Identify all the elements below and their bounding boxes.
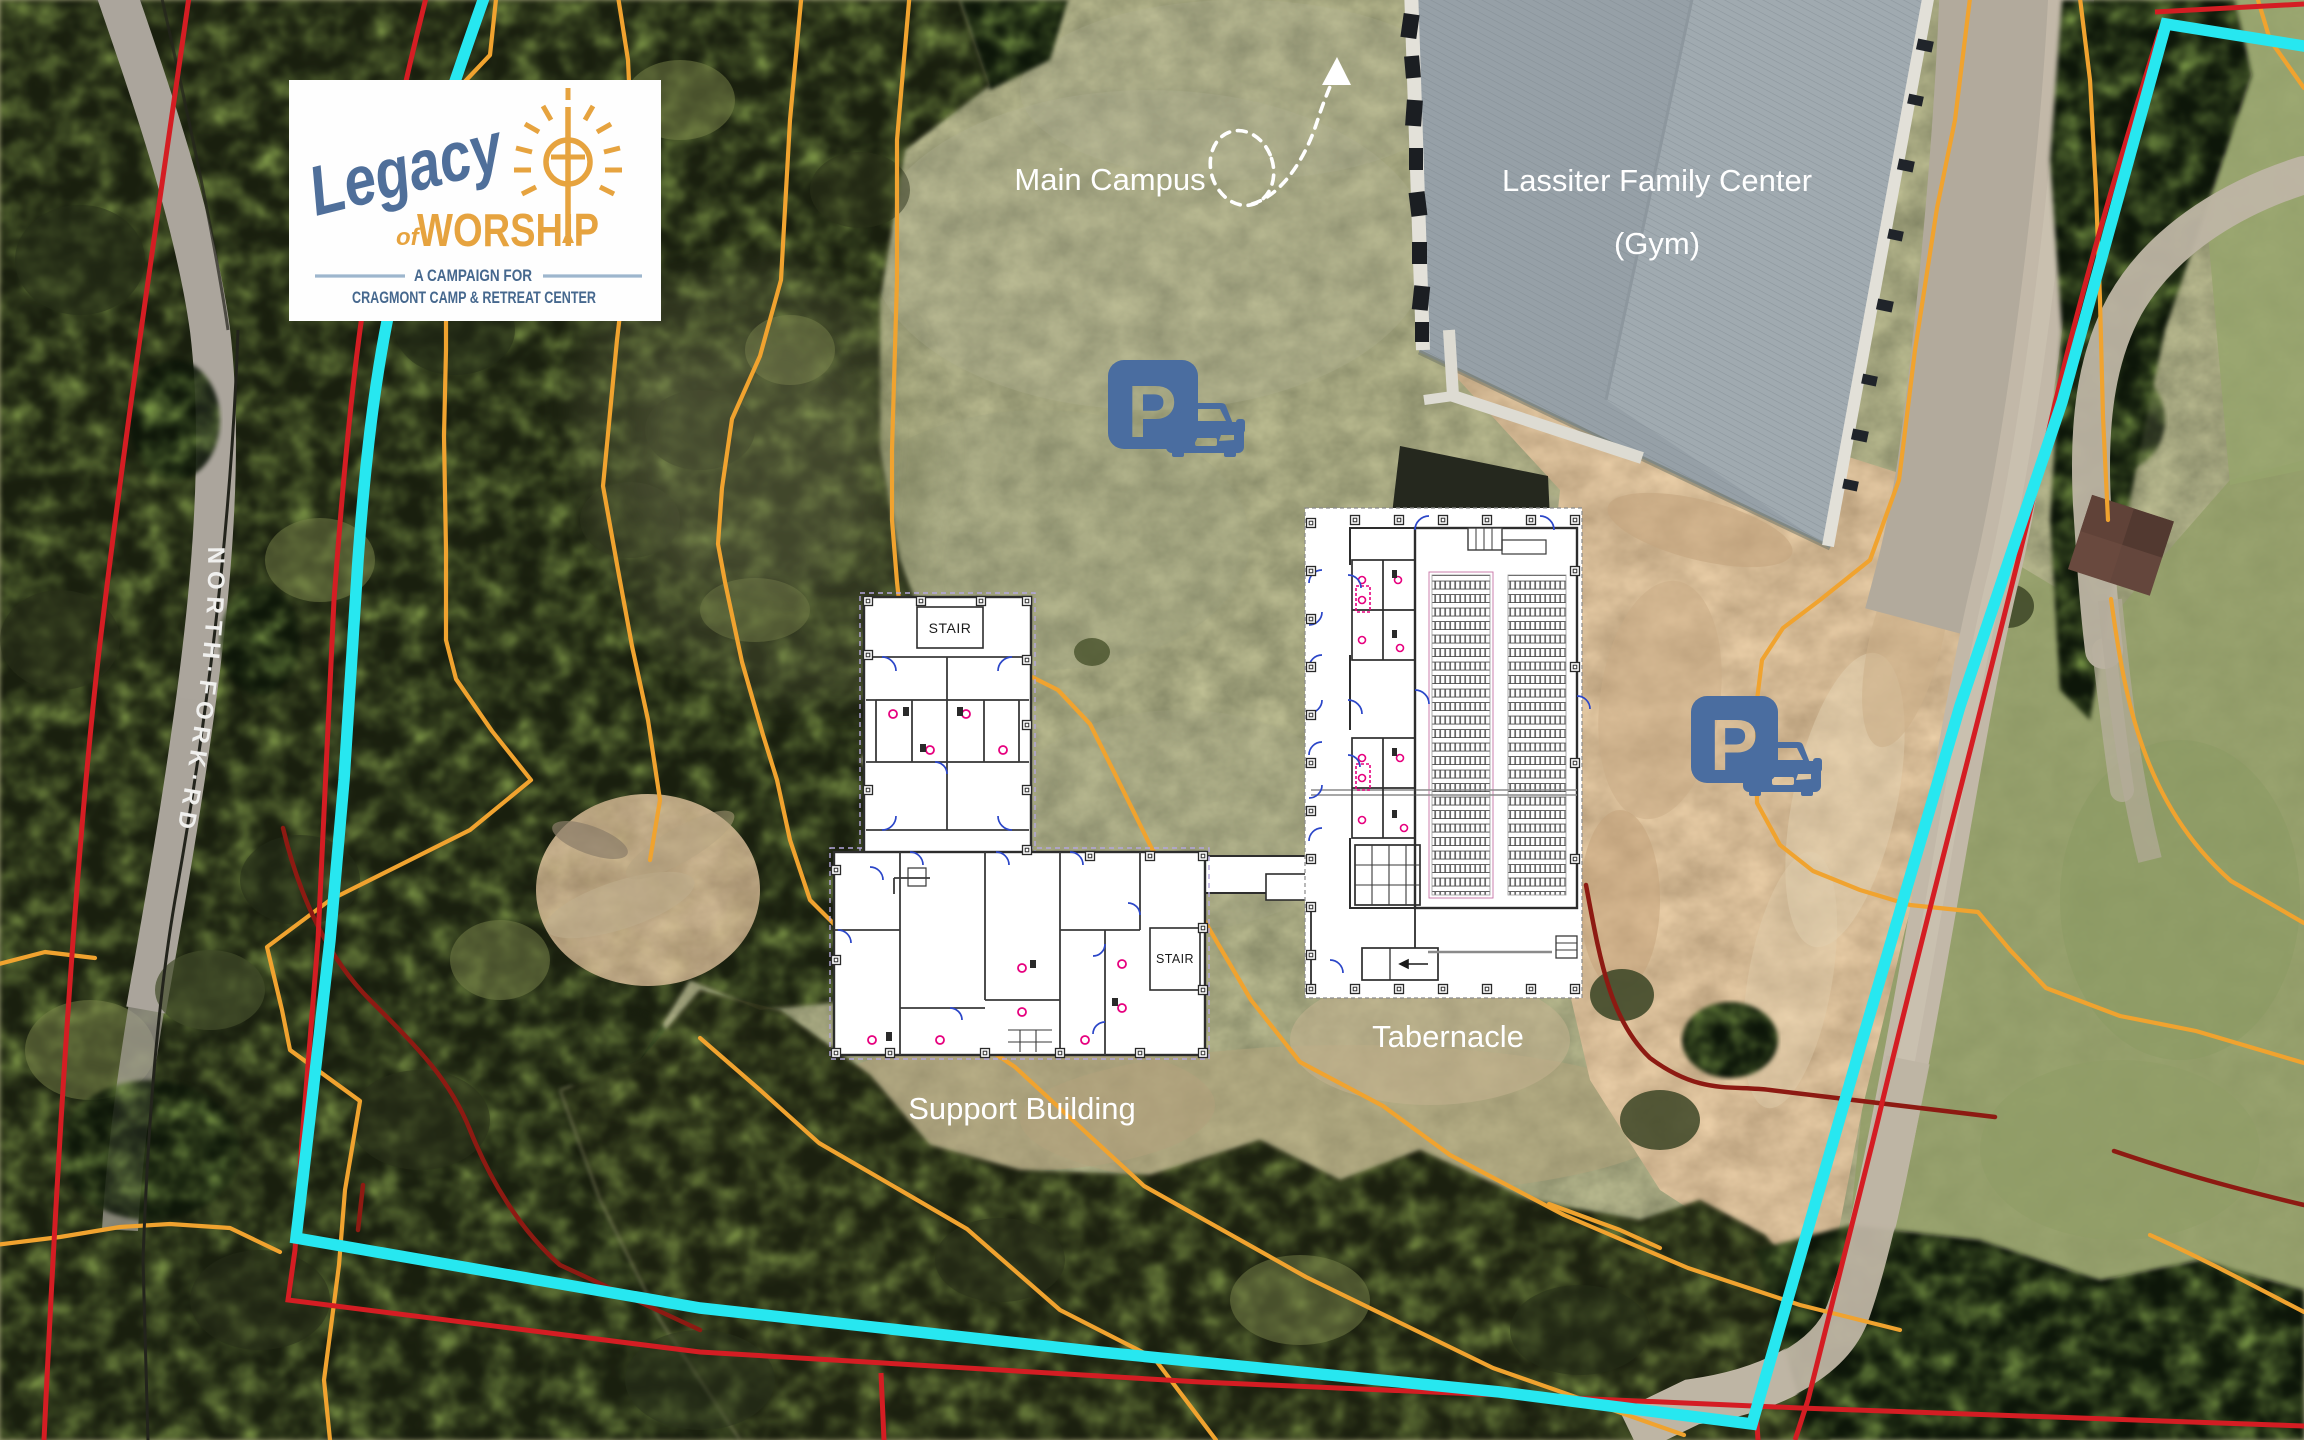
svg-text:CRAGMONT CAMP & RETREAT CENTER: CRAGMONT CAMP & RETREAT CENTER [352, 289, 596, 307]
svg-text:(Gym): (Gym) [1614, 226, 1700, 261]
svg-text:Tabernacle: Tabernacle [1372, 1019, 1524, 1054]
svg-text:STAIR: STAIR [1156, 952, 1194, 966]
svg-text:STAIR: STAIR [929, 620, 972, 636]
svg-text:Main Campus: Main Campus [1014, 162, 1205, 197]
svg-text:WORSHIP: WORSHIP [417, 204, 599, 256]
svg-text:Support Building: Support Building [908, 1091, 1136, 1126]
svg-text:Lassiter Family Center: Lassiter Family Center [1502, 163, 1812, 198]
svg-text:A CAMPAIGN FOR: A CAMPAIGN FOR [414, 267, 532, 285]
